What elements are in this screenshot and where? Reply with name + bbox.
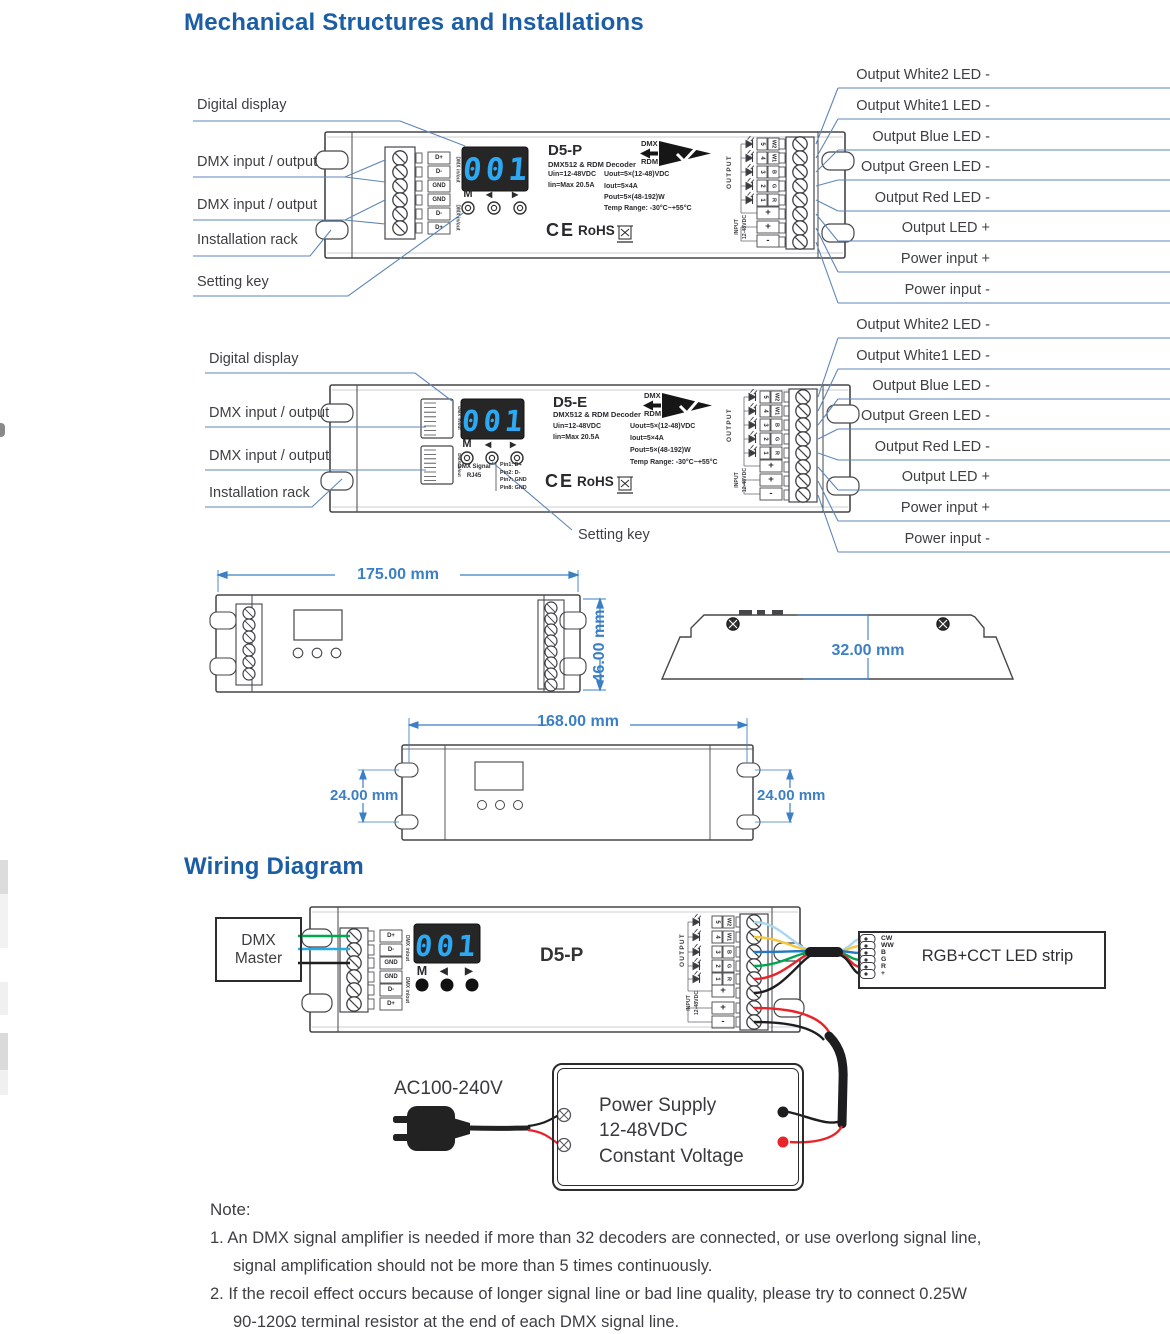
channel-name: W1: [771, 406, 783, 417]
page-edge-artifact: [0, 1070, 8, 1095]
ce-mark: CE: [546, 219, 575, 242]
power-cable-sheath: [829, 1036, 843, 1124]
digital-display-value: 001: [413, 928, 480, 964]
callout-power-plus: Power input +: [828, 499, 990, 517]
channel-number: 5: [756, 139, 768, 149]
callout-dmx-io-2: DMX input / output: [209, 447, 329, 465]
page-edge-artifact: [0, 423, 5, 437]
output-vertical-label: OUTPUT: [726, 145, 736, 199]
section-title-mechanical: Mechanical Structures and Installations: [184, 8, 644, 38]
dmx-terminal-label: D+: [429, 152, 449, 164]
menu-button-label: M: [460, 188, 476, 202]
setting-buttons-icon: [462, 202, 526, 214]
rj45-pin-label: Pin2: D-: [500, 470, 520, 477]
ce-mark: CE: [545, 470, 574, 493]
channel-number: 1: [759, 448, 771, 458]
callout-output-red: Output Red LED -: [828, 189, 990, 207]
rj45-pin-label: Pin8: GND: [500, 485, 527, 492]
prev-button-label: ◀: [485, 440, 491, 450]
callout-output-white2: Output White2 LED -: [828, 66, 990, 84]
psu-label-line1: Power Supply: [599, 1094, 716, 1118]
spec-iout: Iout=5×4A: [604, 183, 638, 192]
input-vertical-label: INPUT12-48VDC: [734, 205, 750, 249]
menu-button-label: M: [414, 964, 430, 980]
channel-number: 4: [759, 406, 771, 416]
channel-number: 3: [711, 947, 723, 957]
logo-rdm-text: RDM: [644, 409, 661, 418]
note-line: 1. An DMX signal amplifier is needed if …: [210, 1228, 981, 1249]
ac-voltage-label: AC100-240V: [394, 1077, 503, 1101]
wiring-model-name: D5-P: [540, 944, 583, 968]
callout-output-red: Output Red LED -: [828, 438, 990, 456]
channel-number: 3: [756, 167, 768, 177]
prev-button-label: ◀: [440, 966, 448, 979]
setting-buttons-icon: [416, 979, 479, 992]
logo-dmx-text: DMX: [644, 391, 661, 400]
channel-name: W2: [771, 392, 783, 403]
input-terminal-label: -: [760, 488, 782, 500]
output-vertical-label: OUTPUT: [726, 398, 736, 452]
channel-name: W2: [723, 917, 735, 928]
channel-number: 4: [711, 932, 723, 942]
channel-name: G: [771, 434, 783, 445]
callout-dmx-io-1: DMX input / output: [209, 404, 329, 422]
callout-output-green: Output Green LED -: [828, 407, 990, 425]
callout-digital-display: Digital display: [197, 96, 286, 114]
menu-button-label: M: [459, 438, 475, 452]
channel-name: R: [723, 974, 735, 985]
dimension-front-height: 46.00 mm: [590, 596, 610, 696]
dmx-terminal-label: D-: [429, 208, 449, 220]
channel-name: B: [723, 947, 735, 958]
channel-name: W2: [768, 139, 780, 150]
note-line: 90-120Ω terminal resistor at the end of …: [233, 1312, 679, 1333]
dimension-front-width: 175.00 mm: [338, 565, 458, 585]
channel-number: 1: [756, 195, 768, 205]
spec-iout: Iout=5×4A: [630, 435, 664, 444]
channel-name: W1: [723, 932, 735, 943]
digital-display-value: 001: [461, 151, 528, 190]
channel-name: B: [771, 420, 783, 431]
callout-installation-rack: Installation rack: [209, 484, 310, 502]
decoder-subtitle: DMX512 & RDM Decoder: [548, 160, 636, 169]
channel-number: 3: [759, 420, 771, 430]
note-line: 2. If the recoil effect occurs because o…: [210, 1284, 967, 1305]
spec-uin: Uin=12-48VDC: [548, 171, 596, 180]
front-view-drawing: [210, 595, 586, 692]
page-edge-artifact: [0, 894, 8, 948]
channel-number: 2: [759, 434, 771, 444]
channel-name: R: [771, 448, 783, 459]
mounting-screw-icon: [727, 618, 739, 630]
next-button-label: ▶: [465, 966, 473, 979]
spec-pout: Pout=5×(48-192)W: [630, 447, 691, 456]
callout-output-ledplus: Output LED +: [828, 468, 990, 486]
input-terminal-label: -: [712, 1016, 734, 1028]
spec-uout: Uout=5×(12-48)VDC: [604, 171, 669, 180]
model-name: D5-P: [548, 142, 582, 161]
callout-output-green: Output Green LED -: [828, 158, 990, 176]
section-title-wiring: Wiring Diagram: [184, 852, 364, 882]
callout-setting-key: Setting key: [197, 273, 269, 291]
callout-output-white1: Output White1 LED -: [828, 97, 990, 115]
callout-digital-display: Digital display: [209, 350, 298, 368]
psu-label-line3: Constant Voltage: [599, 1145, 744, 1169]
dmx-terminal-label: D-: [381, 984, 401, 996]
dmx-inout-vertical-label: DMX in/out: [452, 200, 461, 236]
callout-output-white2: Output White2 LED -: [828, 316, 990, 334]
dimension-depth: 32.00 mm: [818, 641, 918, 661]
rohs-mark: RoHS: [578, 223, 615, 240]
dmx-terminal-label: GND: [381, 957, 401, 969]
psu-label-line2: 12-48VDC: [599, 1119, 688, 1143]
output-terminal-screws-icon: [747, 915, 761, 1029]
page-edge-artifact: [0, 982, 8, 1015]
dmx-master-label: Master: [235, 950, 282, 968]
callout-output-ledplus: Output LED +: [828, 219, 990, 237]
spec-uout: Uout=5×(12-48)VDC: [630, 423, 695, 432]
callout-dmx-io-2: DMX input / output: [197, 196, 317, 214]
dmx-terminal-label: D+: [429, 222, 449, 234]
channel-number: 4: [756, 153, 768, 163]
spec-iin: Iin=Max 20.5A: [548, 182, 595, 191]
dmx-master-box: DMX Master: [215, 917, 302, 982]
decoder-subtitle: DMX512 & RDM Decoder: [553, 410, 641, 419]
channel-name: G: [723, 961, 735, 972]
rj45-signal-label: DMX SignalRJ45: [452, 463, 496, 481]
channel-name: W1: [768, 153, 780, 164]
dmx-terminal-label: D+: [381, 998, 401, 1010]
dmx-terminal-label: D+: [381, 930, 401, 942]
rj45-pin-label: Pin7: GND: [500, 477, 527, 484]
channel-number: 2: [711, 961, 723, 971]
input-vertical-label: INPUT12-48VDC: [686, 981, 702, 1025]
dmx-inout-vertical-label: DMX in/out: [452, 152, 461, 188]
input-terminal-label: -: [757, 235, 779, 247]
callout-setting-key: Setting key: [578, 526, 650, 544]
logo-rdm-text: RDM: [641, 157, 658, 166]
input-terminal-label: +: [712, 1002, 734, 1014]
rohs-mark: RoHS: [577, 474, 614, 491]
input-terminal-label: +: [757, 221, 779, 233]
channel-number: 5: [759, 392, 771, 402]
channel-name: R: [768, 195, 780, 206]
dmx-master-label: DMX: [241, 932, 275, 950]
channel-name: B: [768, 167, 780, 178]
callout-installation-rack: Installation rack: [197, 231, 298, 249]
dmx-inout-vertical-label: DMX in/out: [402, 930, 410, 966]
dmx-terminal-label: D-: [381, 944, 401, 956]
bottom-view-drawing: [395, 745, 760, 840]
dmx-terminal-label: GND: [381, 971, 401, 983]
spec-pout: Pout=5×(48-192)W: [604, 194, 665, 203]
rj45-pin-label: Pin1: D+: [500, 462, 522, 469]
input-terminal-label: +: [712, 985, 734, 997]
input-terminal-label: +: [757, 207, 779, 219]
page-edge-artifact: [0, 860, 8, 894]
next-button-label: ▶: [510, 440, 516, 450]
spec-temp: Temp Range: -30°C~+55°C: [630, 459, 718, 468]
manual-page: Mechanical Structures and Installations …: [0, 0, 1170, 1334]
callout-output-white1: Output White1 LED -: [828, 347, 990, 365]
dmx-terminal-label: GND: [429, 180, 449, 192]
callout-power-plus: Power input +: [828, 250, 990, 268]
led-strip-label: RGB+CCT LED strip: [900, 946, 1095, 967]
callout-power-minus: Power input -: [828, 281, 990, 299]
channel-number: 5: [711, 917, 723, 927]
prev-button-label: ◀: [486, 190, 492, 200]
dimension-mount-left: 24.00 mm: [330, 787, 396, 806]
channel-number: 2: [756, 181, 768, 191]
input-terminal-label: +: [760, 460, 782, 472]
dmx-inout-vertical-label: DMX in/out: [402, 972, 410, 1008]
page-edge-artifact: [0, 1033, 8, 1070]
spec-temp: Temp Range: -30°C~+55°C: [604, 205, 692, 214]
spec-iin: Iin=Max 20.5A: [553, 434, 600, 443]
ac-plug-icon: [393, 1106, 560, 1151]
callout-output-blue: Output Blue LED -: [828, 377, 990, 395]
mounting-screw-icon: [937, 618, 949, 630]
callout-dmx-io-1: DMX input / output: [197, 153, 317, 171]
channel-number: 1: [711, 974, 723, 984]
dmx-terminal-label: D-: [429, 166, 449, 178]
dmx-terminal-label: GND: [429, 194, 449, 206]
input-terminal-label: +: [760, 474, 782, 486]
spec-uin: Uin=12-48VDC: [553, 423, 601, 432]
callout-output-blue: Output Blue LED -: [828, 128, 990, 146]
note-line: signal amplification should not be more …: [233, 1256, 712, 1277]
strip-pin-label: +: [881, 970, 885, 978]
logo-dmx-text: DMX: [641, 139, 658, 148]
dimension-mount-width: 168.00 mm: [518, 712, 638, 732]
note-heading: Note:: [210, 1199, 251, 1220]
channel-name: G: [768, 181, 780, 192]
digital-display-value: 001: [460, 403, 525, 439]
dimension-mount-right: 24.00 mm: [757, 787, 823, 806]
input-vertical-label: INPUT12-48VDC: [734, 458, 750, 502]
next-button-label: ▶: [512, 190, 518, 200]
output-vertical-label: OUTPUT: [679, 923, 689, 977]
callout-power-minus: Power input -: [828, 530, 990, 548]
